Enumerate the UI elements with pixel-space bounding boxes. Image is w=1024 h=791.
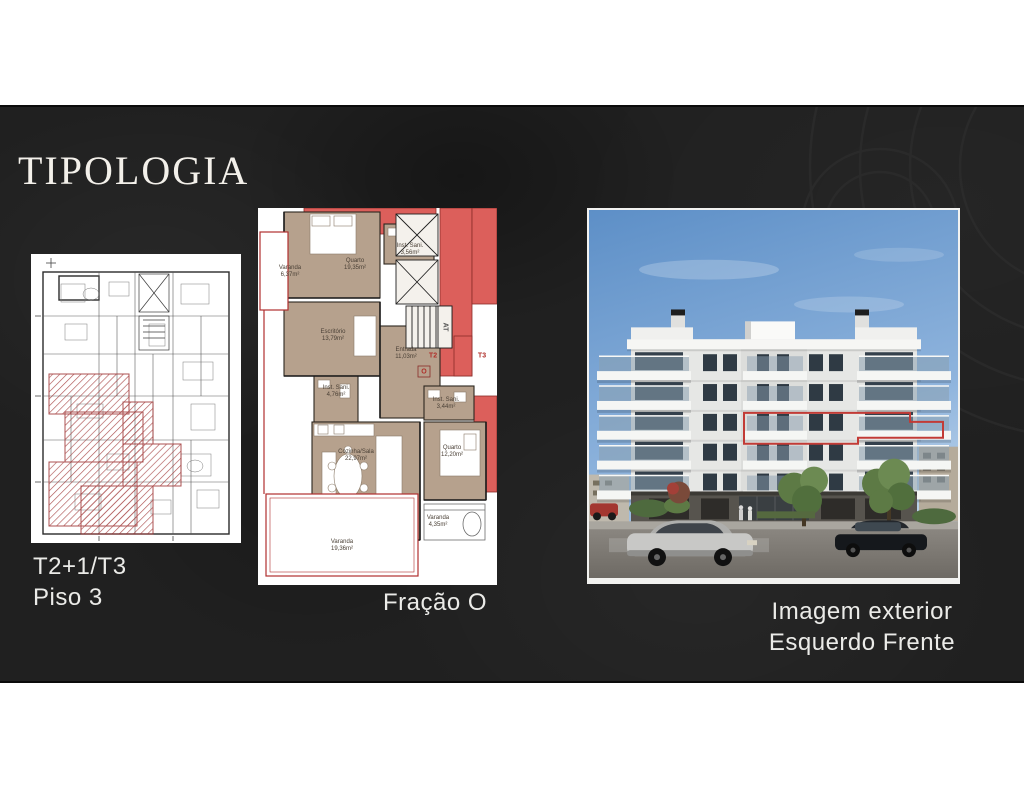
floorplan-fracao-o-drawing (258, 208, 497, 585)
exterior-caption-line1: Imagem exterior (712, 596, 1012, 627)
left-plan-caption: T2+1/T3 Piso 3 (33, 551, 127, 613)
floorplan-piso3-image (31, 254, 241, 543)
building-render (589, 210, 958, 578)
plan-varanda-right (424, 504, 485, 540)
exterior-caption-line2: Esquerdo Frente (712, 627, 1012, 658)
page-title: TIPOLOGIA (18, 147, 249, 194)
floorplan-fracao-o-image: Varanda6,37m² Quarto19,35m² Inst. Sani.3… (258, 208, 497, 585)
left-plan-caption-line2: Piso 3 (33, 582, 127, 613)
exterior-render-image (587, 208, 960, 584)
floorplan-piso3-drawing (31, 254, 241, 543)
left-plan-caption-line1: T2+1/T3 (33, 551, 127, 582)
fraction-marker-box (418, 366, 430, 377)
page: { "slide": { "title": "TIPOLOGIA", "left… (0, 0, 1024, 791)
slide-background: TIPOLOGIA (0, 105, 1024, 683)
exterior-caption: Imagem exterior Esquerdo Frente (712, 596, 1012, 658)
mid-plan-caption: Fração O (335, 587, 535, 618)
